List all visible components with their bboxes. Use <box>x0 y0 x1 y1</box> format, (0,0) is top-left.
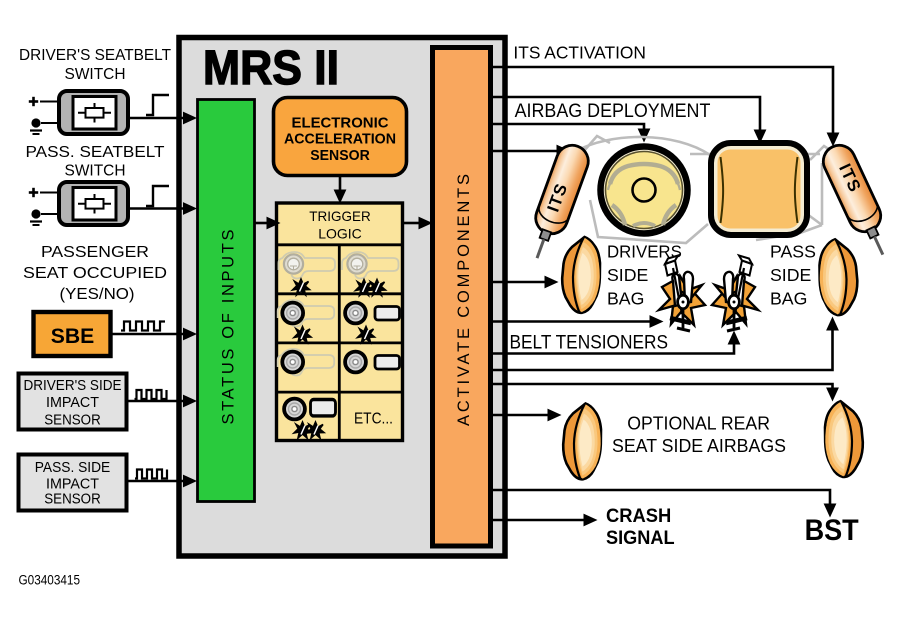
svg-text:STATUS OF INPUTS: STATUS OF INPUTS <box>220 230 238 425</box>
svg-text:PASS: PASS <box>770 242 816 262</box>
svg-text:G03403415: G03403415 <box>19 573 81 588</box>
svg-text:BST: BST <box>805 514 859 547</box>
svg-text:SEAT SIDE AIRBAGS: SEAT SIDE AIRBAGS <box>612 436 786 456</box>
svg-text:SIDE: SIDE <box>770 265 811 285</box>
svg-text:LOGIC: LOGIC <box>318 225 362 241</box>
svg-text:BAG: BAG <box>607 288 644 308</box>
svg-text:CRASH: CRASH <box>606 506 671 527</box>
svg-text:PASS. SIDE: PASS. SIDE <box>35 460 111 476</box>
svg-text:SIDE: SIDE <box>607 265 648 285</box>
svg-text:OPTIONAL REAR: OPTIONAL REAR <box>627 414 770 434</box>
svg-text:MRS II: MRS II <box>203 42 339 95</box>
svg-text:DRIVERS: DRIVERS <box>607 242 682 262</box>
svg-text:IMPACT: IMPACT <box>46 477 99 493</box>
svg-text:SBE: SBE <box>51 324 95 348</box>
svg-text:ELECTRONIC: ELECTRONIC <box>292 115 389 132</box>
svg-text:SENSOR: SENSOR <box>310 147 370 164</box>
svg-text:AIRBAG DEPLOYMENT: AIRBAG DEPLOYMENT <box>515 101 711 122</box>
svg-text:TRIGGER: TRIGGER <box>309 208 370 224</box>
svg-text:BAG: BAG <box>770 288 807 308</box>
svg-text:SENSOR: SENSOR <box>44 492 101 508</box>
svg-text:SENSOR: SENSOR <box>44 412 101 428</box>
svg-text:ACCELERATION: ACCELERATION <box>284 131 396 148</box>
svg-text:IMPACT: IMPACT <box>46 395 99 411</box>
svg-text:PASS. SEATBELT: PASS. SEATBELT <box>26 144 165 161</box>
svg-text:ACTIVATE COMPONENTS: ACTIVATE COMPONENTS <box>455 174 473 426</box>
svg-text:SWITCH: SWITCH <box>65 163 126 180</box>
svg-text:SEAT OCCUPIED: SEAT OCCUPIED <box>23 265 167 282</box>
svg-text:DRIVER'S SEATBELT: DRIVER'S SEATBELT <box>19 47 171 64</box>
svg-text:ITS ACTIVATION: ITS ACTIVATION <box>513 42 646 62</box>
svg-text:ETC...: ETC... <box>354 410 393 427</box>
svg-text:PASSENGER: PASSENGER <box>41 244 149 261</box>
svg-text:BELT TENSIONERS: BELT TENSIONERS <box>510 333 669 354</box>
svg-text:DRIVER'S SIDE: DRIVER'S SIDE <box>24 378 122 394</box>
svg-text:SWITCH: SWITCH <box>65 66 126 83</box>
svg-text:(YES/NO): (YES/NO) <box>60 286 135 303</box>
svg-text:SIGNAL: SIGNAL <box>606 528 675 549</box>
